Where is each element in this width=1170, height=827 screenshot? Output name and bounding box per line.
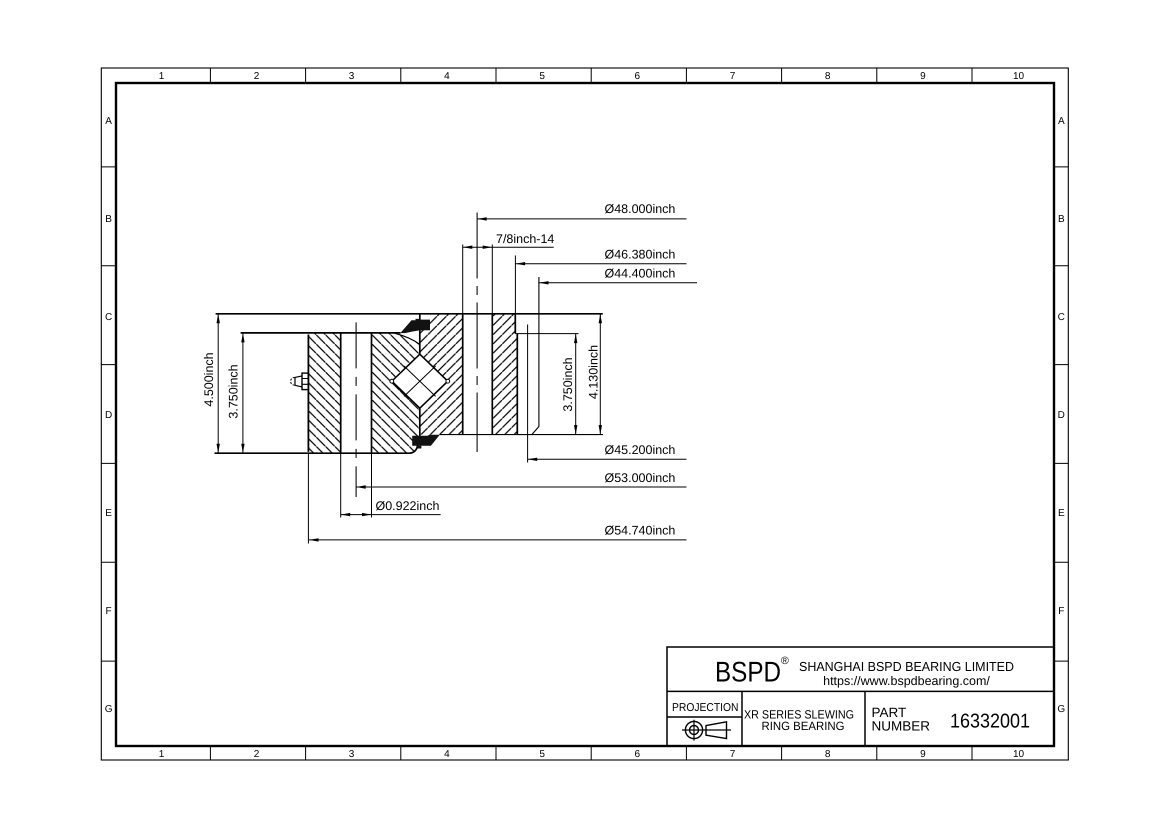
svg-text:7/8inch-14: 7/8inch-14: [496, 232, 554, 246]
svg-text:NUMBER: NUMBER: [872, 719, 931, 734]
svg-text:A: A: [105, 116, 112, 127]
svg-text:SHANGHAI BSPD BEARING LIMITED: SHANGHAI BSPD BEARING LIMITED: [799, 659, 1014, 674]
svg-text:3: 3: [349, 71, 355, 82]
svg-text:16332001: 16332001: [950, 711, 1030, 733]
svg-text:2: 2: [254, 71, 260, 82]
svg-text:RING BEARING: RING BEARING: [762, 719, 845, 733]
svg-text:4: 4: [444, 749, 450, 760]
svg-text:5: 5: [539, 749, 545, 760]
svg-text:F: F: [1058, 606, 1064, 617]
svg-text:Ø0.922inch: Ø0.922inch: [376, 499, 440, 513]
svg-text:7: 7: [730, 71, 736, 82]
svg-text:G: G: [105, 704, 113, 715]
svg-text:5: 5: [539, 71, 545, 82]
svg-text:9: 9: [920, 749, 926, 760]
svg-text:C: C: [1058, 312, 1065, 323]
svg-text:Ø45.200inch: Ø45.200inch: [605, 443, 676, 457]
svg-text:BSPD: BSPD: [715, 657, 781, 689]
svg-text:A: A: [1058, 116, 1065, 127]
svg-text:Ø46.380inch: Ø46.380inch: [605, 248, 676, 262]
svg-text:D: D: [1058, 410, 1065, 421]
svg-text:7: 7: [730, 749, 736, 760]
svg-text:Ø54.740inch: Ø54.740inch: [605, 524, 676, 538]
svg-text:PROJECTION: PROJECTION: [672, 702, 739, 714]
svg-text:10: 10: [1013, 71, 1025, 82]
svg-text:Ø53.000inch: Ø53.000inch: [605, 471, 676, 485]
svg-text:3: 3: [349, 749, 355, 760]
svg-text:C: C: [105, 312, 112, 323]
svg-text:10: 10: [1013, 749, 1025, 760]
svg-text:Ø44.400inch: Ø44.400inch: [605, 267, 676, 281]
svg-text:4.500inch: 4.500inch: [202, 352, 216, 406]
svg-text:E: E: [105, 508, 112, 519]
svg-text:1: 1: [159, 71, 165, 82]
svg-text:6: 6: [635, 71, 641, 82]
svg-text:6: 6: [635, 749, 641, 760]
svg-text:F: F: [106, 606, 112, 617]
svg-text:D: D: [105, 410, 112, 421]
svg-text:8: 8: [825, 749, 831, 760]
svg-text:®: ®: [781, 655, 789, 667]
svg-text:https://www.bspdbearing.com/: https://www.bspdbearing.com/: [823, 674, 990, 688]
svg-text:8: 8: [825, 71, 831, 82]
svg-text:G: G: [1057, 704, 1065, 715]
svg-text:E: E: [1058, 508, 1065, 519]
svg-text:B: B: [1058, 214, 1065, 225]
svg-text:3.750inch: 3.750inch: [561, 357, 575, 411]
svg-text:Ø48.000inch: Ø48.000inch: [605, 202, 676, 216]
svg-text:1: 1: [159, 749, 165, 760]
svg-text:4: 4: [444, 71, 450, 82]
svg-text:3.750inch: 3.750inch: [226, 364, 240, 418]
svg-text:4.130inch: 4.130inch: [586, 345, 600, 399]
svg-text:9: 9: [920, 71, 926, 82]
svg-text:2: 2: [254, 749, 260, 760]
svg-text:B: B: [105, 214, 112, 225]
